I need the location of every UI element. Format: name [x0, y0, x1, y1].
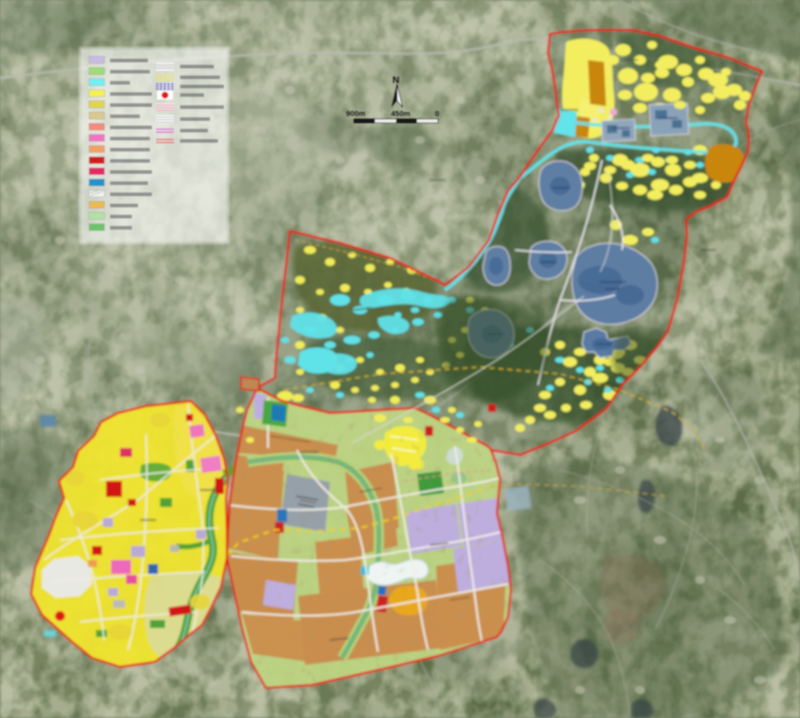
svg-text:N: N	[393, 75, 400, 86]
svg-text:0: 0	[435, 109, 439, 118]
svg-text:900m: 900m	[346, 109, 366, 118]
svg-text:450m: 450m	[391, 109, 411, 118]
